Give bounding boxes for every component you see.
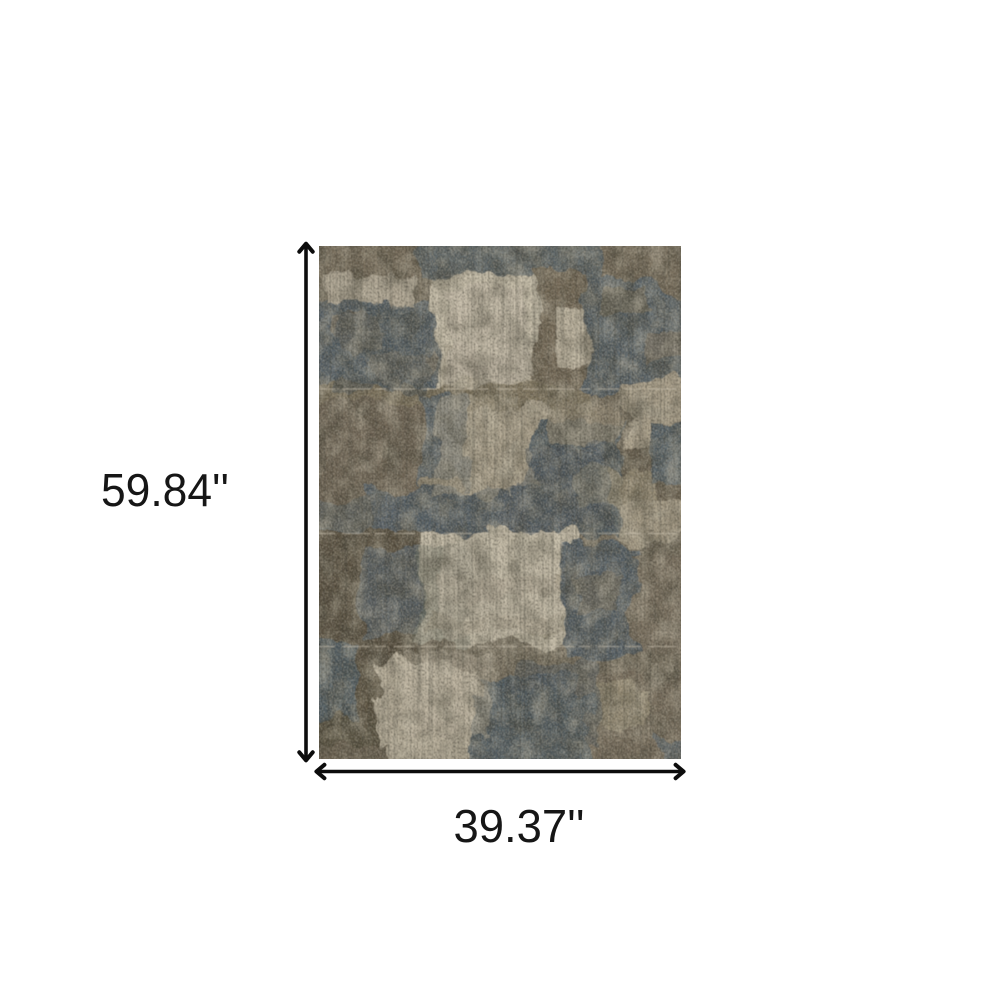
svg-text:39.37'': 39.37'' [454, 800, 585, 852]
svg-text:59.84'': 59.84'' [101, 464, 229, 516]
